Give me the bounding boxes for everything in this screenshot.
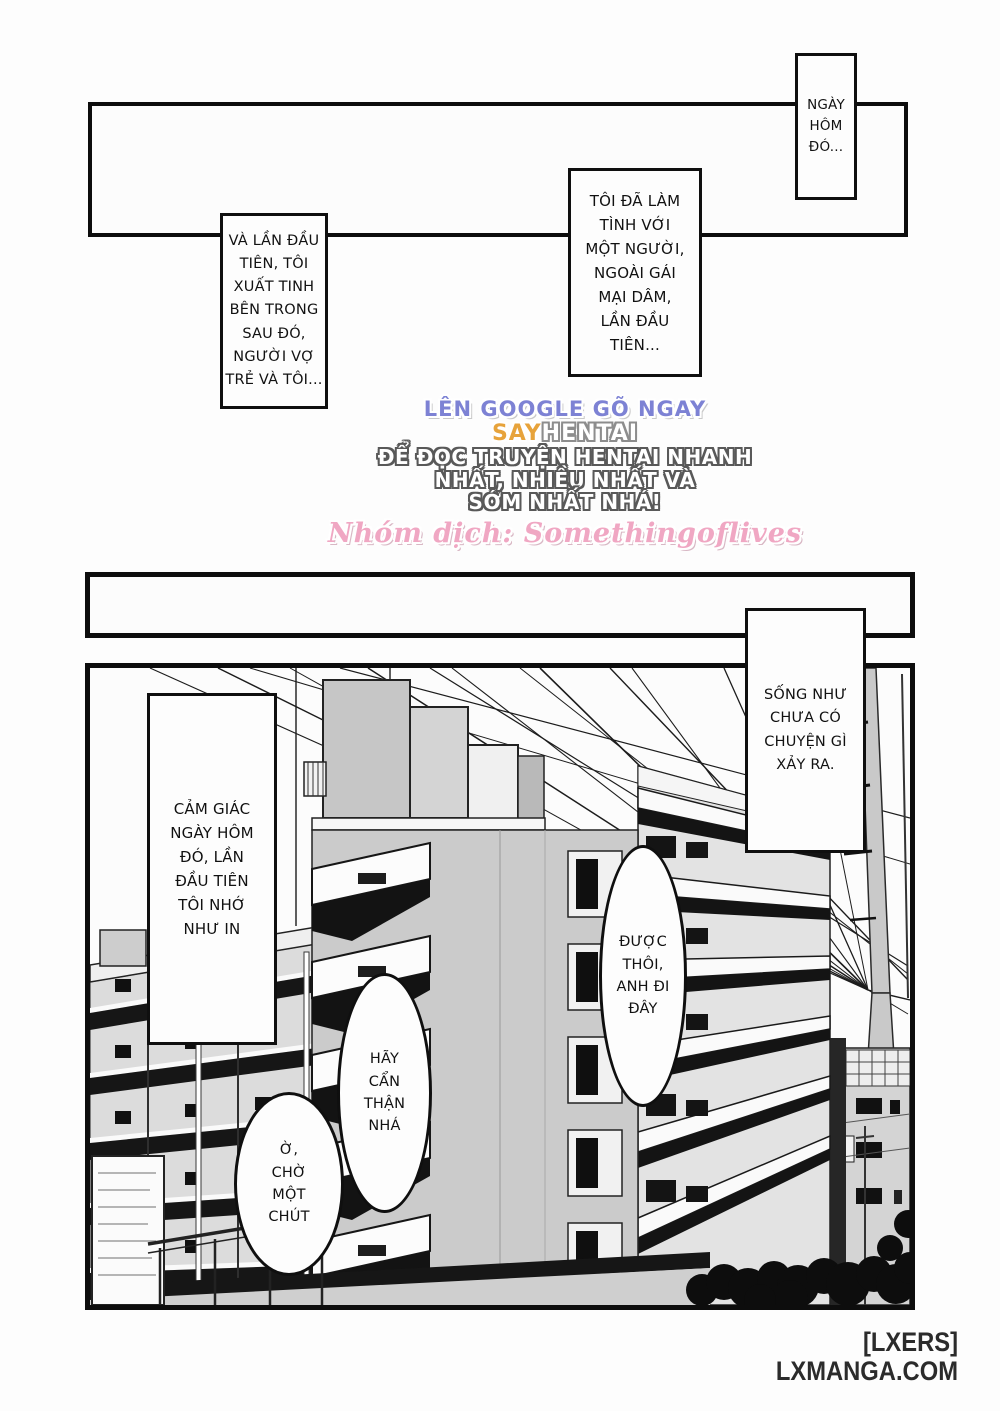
caption-text-left: VÀ LẦN ĐẦU TIÊN, TÔI XUẤT TINH BÊN TRONG… (225, 230, 322, 392)
credit-group: [LXERS] (776, 1328, 958, 1357)
signboard (92, 1156, 164, 1305)
watermark-line-3: ĐỂ ĐỌC TRUYỆN HENTAI NHANH (305, 446, 825, 468)
caption-box-top-right: NGÀY HÔM ĐÓ... (795, 53, 857, 200)
watermark-site-highlight: SAY (492, 421, 542, 446)
speech-bubble-duoc-thoi: ĐƯỢC THÔI, ANH ĐI ĐÂY (599, 845, 687, 1107)
watermark-line-1: LÊN GOOGLE GÕ NGAY (305, 398, 825, 422)
speech-text-o-cho: Ờ, CHỜ MỘT CHÚT (268, 1139, 309, 1229)
caption-box-left: VÀ LẦN ĐẦU TIÊN, TÔI XUẤT TINH BÊN TRONG… (220, 213, 328, 409)
caption-text-center: TÔI ĐÃ LÀM TÌNH VỚI MỘT NGƯỜI, NGOÀI GÁI… (585, 189, 684, 357)
speech-bubble-o-cho: Ờ, CHỜ MỘT CHÚT (234, 1092, 344, 1276)
watermark-line-5: SỚM NHẤT NHÁ! (305, 491, 825, 513)
caption-box-cam-giac: CẢM GIÁC NGÀY HÔM ĐÓ, LẦN ĐẦU TIÊN TÔI N… (147, 693, 277, 1045)
watermark-credit: Nhóm dịch: Somethingoflives (305, 519, 825, 549)
manga-page: NGÀY HÔM ĐÓ... TÔI ĐÃ LÀM TÌNH VỚI MỘT N… (0, 0, 1000, 1411)
translator-watermark: LÊN GOOGLE GÕ NGAY SAYHENTAI ĐỂ ĐỌC TRUY… (305, 398, 825, 550)
watermark-line-2: SAYHENTAI (305, 422, 825, 447)
scanlation-credit: [LXERS] LXMANGA.COM (776, 1328, 958, 1386)
caption-text-top-right: NGÀY HÔM ĐÓ... (807, 95, 845, 158)
watermark-line-4: NHẤT, NHIỀU NHẤT VÀ (305, 469, 825, 491)
caption-box-song-nhu: SỐNG NHƯ CHƯA CÓ CHUYỆN GÌ XẢY RA. (745, 608, 866, 853)
caption-text-cam-giac: CẢM GIÁC NGÀY HÔM ĐÓ, LẦN ĐẦU TIÊN TÔI N… (170, 797, 254, 941)
panel-top (88, 102, 908, 237)
credit-site: LXMANGA.COM (776, 1357, 958, 1386)
speech-text-duoc-thoi: ĐƯỢC THÔI, ANH ĐI ĐÂY (617, 931, 670, 1021)
watermark-site-rest: HENTAI (542, 421, 638, 446)
speech-text-hay-can-than: HÃY CẨN THẬN NHÁ (364, 1048, 405, 1138)
speech-bubble-hay-can-than: HÃY CẨN THẬN NHÁ (337, 973, 432, 1213)
caption-box-center: TÔI ĐÃ LÀM TÌNH VỚI MỘT NGƯỜI, NGOÀI GÁI… (568, 168, 702, 377)
caption-text-song-nhu: SỐNG NHƯ CHƯA CÓ CHUYỆN GÌ XẢY RA. (764, 684, 847, 777)
